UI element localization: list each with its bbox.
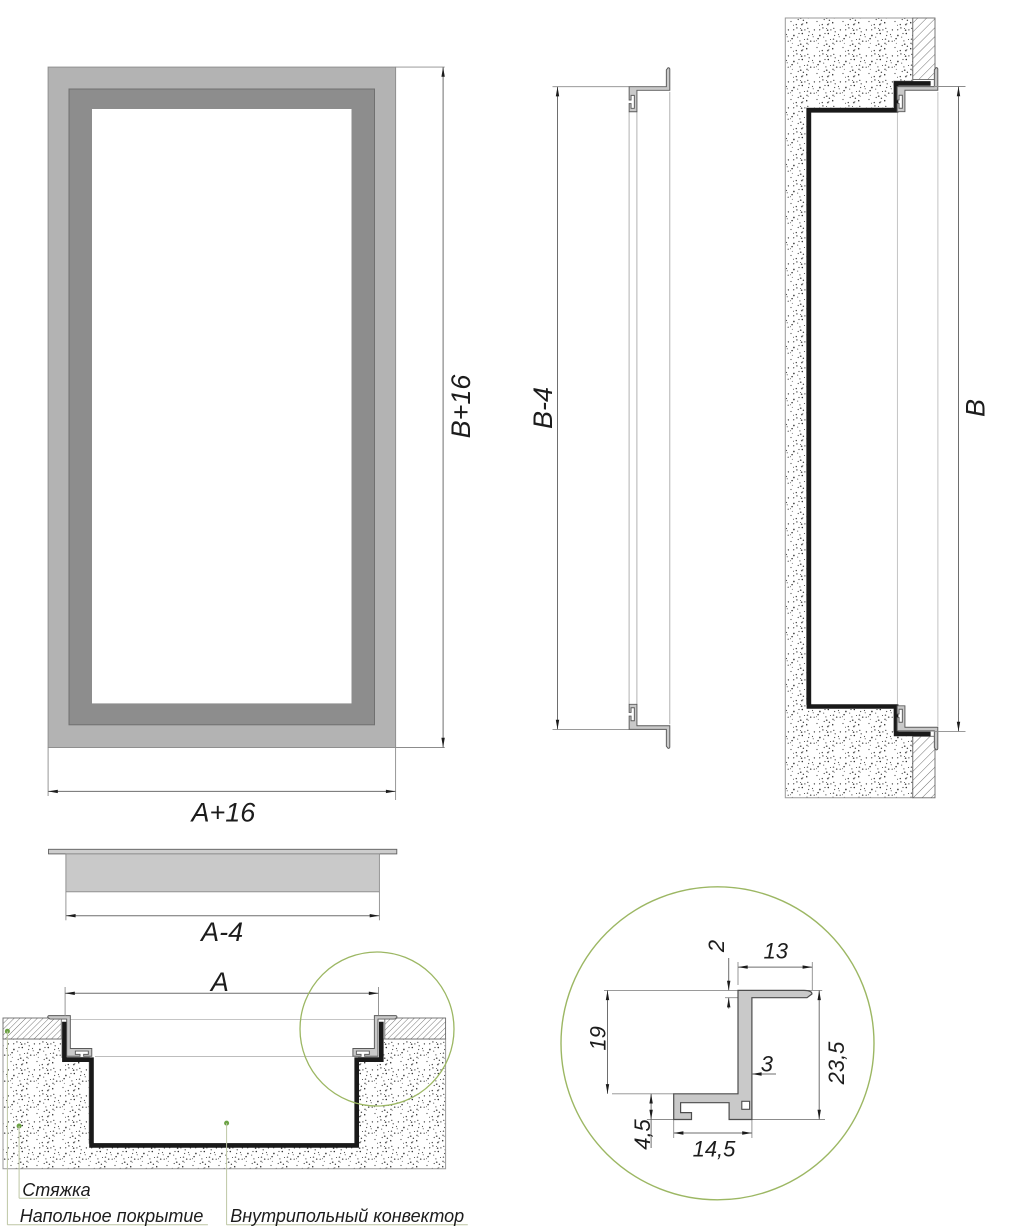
svg-text:19: 19: [586, 1026, 611, 1050]
svg-text:B+16: B+16: [446, 374, 476, 439]
svg-text:Напольное покрытие: Напольное покрытие: [20, 1206, 204, 1226]
svg-text:B-4: B-4: [528, 387, 558, 429]
svg-text:3: 3: [761, 1052, 774, 1077]
svg-text:A-4: A-4: [199, 917, 243, 947]
svg-text:Стяжка: Стяжка: [22, 1180, 90, 1200]
svg-text:13: 13: [764, 939, 789, 964]
svg-text:Внутрипольный конвектор: Внутрипольный конвектор: [230, 1206, 464, 1226]
svg-text:B: B: [961, 399, 991, 417]
svg-text:2: 2: [704, 940, 729, 953]
svg-text:14,5: 14,5: [693, 1137, 737, 1162]
svg-text:A+16: A+16: [189, 798, 256, 828]
svg-text:23,5: 23,5: [824, 1041, 849, 1086]
svg-text:4,5: 4,5: [630, 1118, 655, 1149]
svg-text:A: A: [209, 967, 229, 997]
